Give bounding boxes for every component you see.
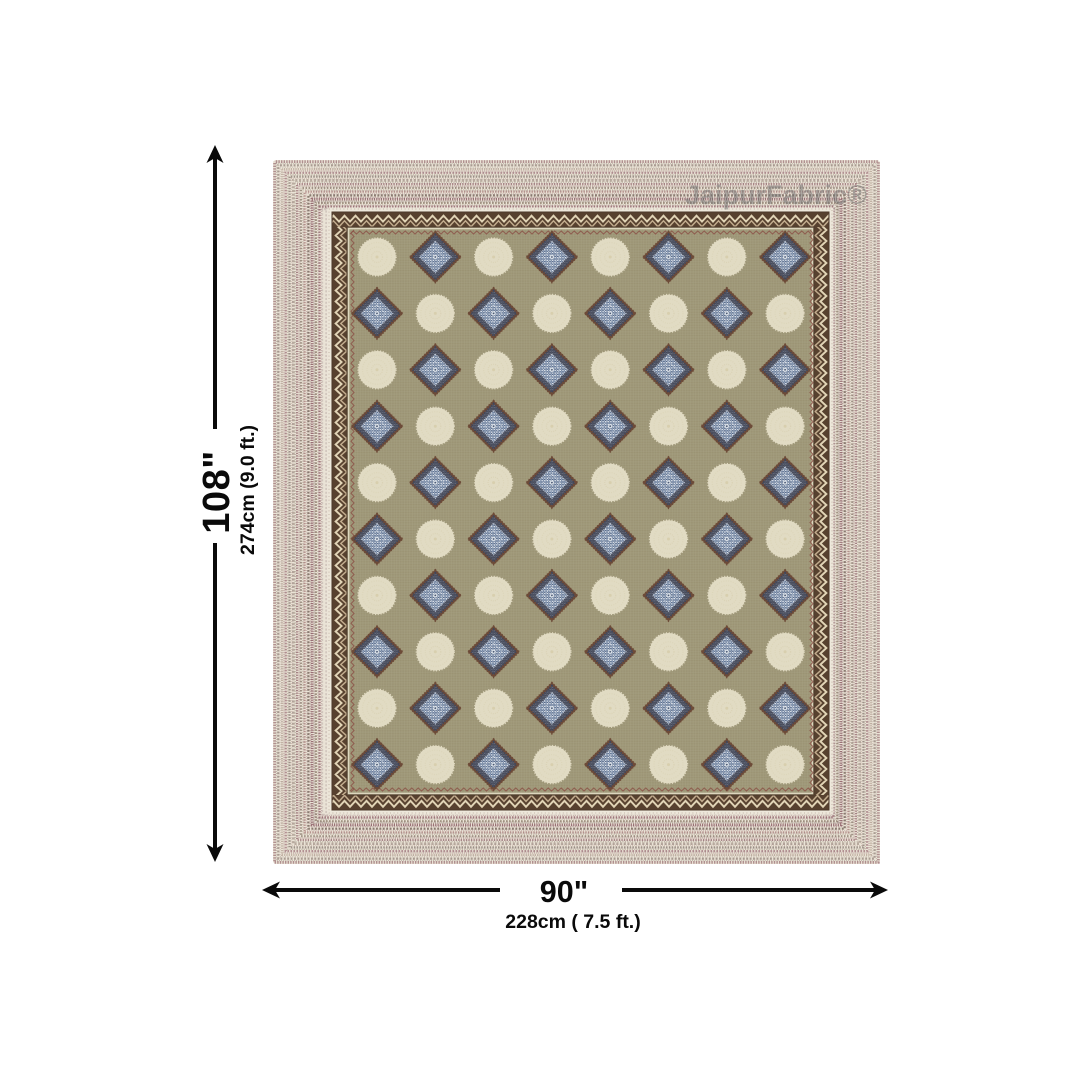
svg-text:JaipurFabric®: JaipurFabric® xyxy=(685,180,867,210)
svg-text:228cm ( 7.5 ft.): 228cm ( 7.5 ft.) xyxy=(505,911,640,933)
svg-text:108": 108" xyxy=(196,450,238,533)
svg-text:90": 90" xyxy=(540,875,588,909)
svg-text:274cm (9.0 ft.): 274cm (9.0 ft.) xyxy=(237,425,259,555)
